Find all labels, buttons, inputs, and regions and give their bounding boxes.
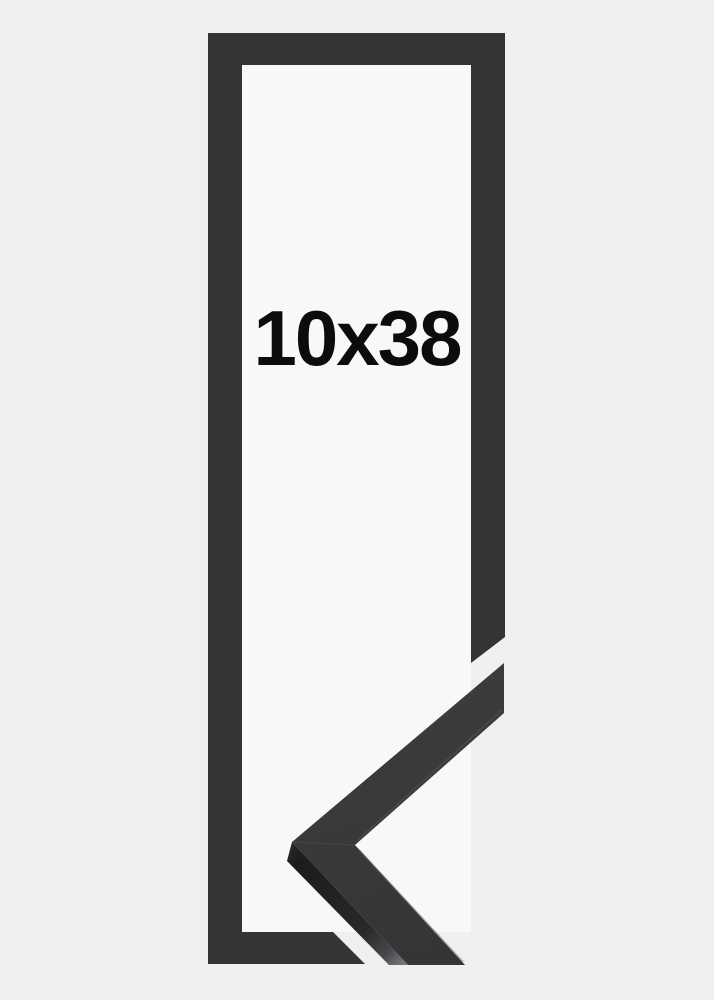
size-label: 10x38 bbox=[0, 299, 714, 377]
frame-illustration bbox=[0, 0, 714, 1000]
product-image: 10x38 bbox=[0, 0, 714, 1000]
frame-top-bar bbox=[208, 33, 505, 65]
frame-left-bar bbox=[208, 33, 242, 964]
